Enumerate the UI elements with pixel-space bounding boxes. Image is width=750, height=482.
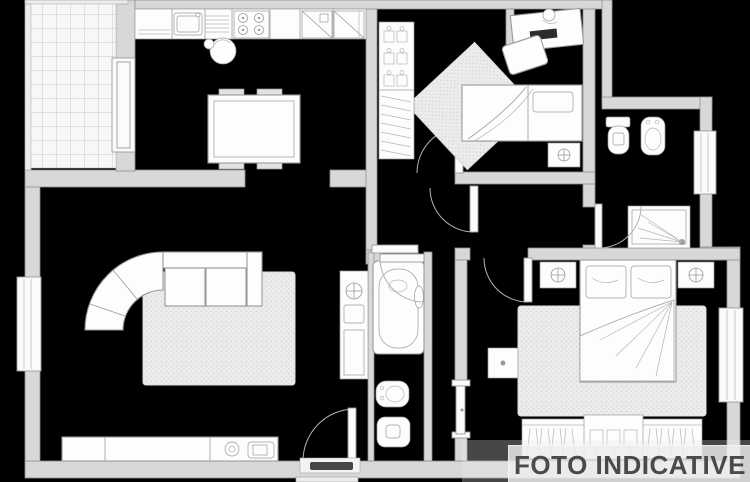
- wall-kitchen-bed1-divider: [366, 9, 377, 250]
- wall-right-upper: [602, 0, 612, 104]
- wall-top-right: [602, 97, 712, 109]
- kitchen-sink: [174, 13, 229, 35]
- kitchen: [135, 9, 366, 169]
- entry-step: [296, 477, 358, 482]
- wall-bathroom-east: [424, 252, 432, 461]
- wall-balcony-right-a: [116, 0, 135, 60]
- bathroom-bidet: [376, 381, 409, 407]
- entrance-door: [303, 408, 356, 461]
- floor-plan: [0, 0, 750, 482]
- watermark-band: FOTO INDICATIVE: [508, 445, 750, 482]
- single-bed: [462, 85, 582, 141]
- wall-master-west-a: [455, 260, 467, 384]
- wall-balcony-right-b: [116, 150, 135, 171]
- bathroom2: [595, 117, 690, 248]
- balcony-rail-top: [25, 0, 128, 4]
- window-master-right: [719, 308, 743, 402]
- bathroom2-toilet: [606, 117, 630, 154]
- bedroom1: [379, 8, 584, 169]
- floor-plan-canvas: FOTO INDICATIVE: [0, 0, 750, 482]
- master-door: [484, 258, 532, 302]
- wall-bed1-south: [455, 172, 595, 184]
- dining-table: [208, 89, 300, 169]
- kitchen-tall-unit-b: [334, 11, 364, 38]
- living-room: [62, 252, 368, 461]
- balcony-tiled-floor: [31, 4, 116, 168]
- wall-living-top-b: [330, 170, 367, 187]
- wall-living-top-a: [25, 170, 245, 187]
- master-nightstand-left: [540, 262, 576, 288]
- bathroom2-bidet: [641, 117, 665, 155]
- kitchen-stool: [204, 38, 236, 64]
- balcony-door: [112, 58, 135, 152]
- illegible-label: [300, 458, 360, 473]
- window-living-left: [17, 277, 41, 371]
- shower: [628, 206, 690, 248]
- sideboard: [62, 437, 278, 461]
- wall-unit-radiator: [340, 271, 368, 379]
- corridor-door: [430, 186, 478, 232]
- bedroom1-nightstand: [548, 143, 580, 167]
- double-bed: [580, 260, 676, 382]
- bedroom1-wardrobe: [379, 22, 414, 159]
- kitchen-tall-unit-a: [302, 11, 332, 38]
- master-dresser: [488, 348, 518, 378]
- bathtub: [373, 261, 424, 354]
- corridor-open-door: [452, 380, 470, 438]
- balcony-rail-left: [25, 0, 31, 170]
- wall-top: [128, 0, 612, 9]
- bathroom-main: [373, 254, 424, 447]
- master-nightstand-right: [678, 262, 714, 288]
- wall-master-north-b: [528, 248, 740, 260]
- master-bedroom: [452, 260, 714, 459]
- watermark-text: FOTO INDICATIVE: [514, 452, 746, 478]
- bathroom-toilet: [377, 417, 410, 447]
- kitchen-stove: [234, 11, 269, 38]
- wall-master-north-a: [455, 248, 470, 260]
- window-bathroom2-right: [694, 131, 716, 194]
